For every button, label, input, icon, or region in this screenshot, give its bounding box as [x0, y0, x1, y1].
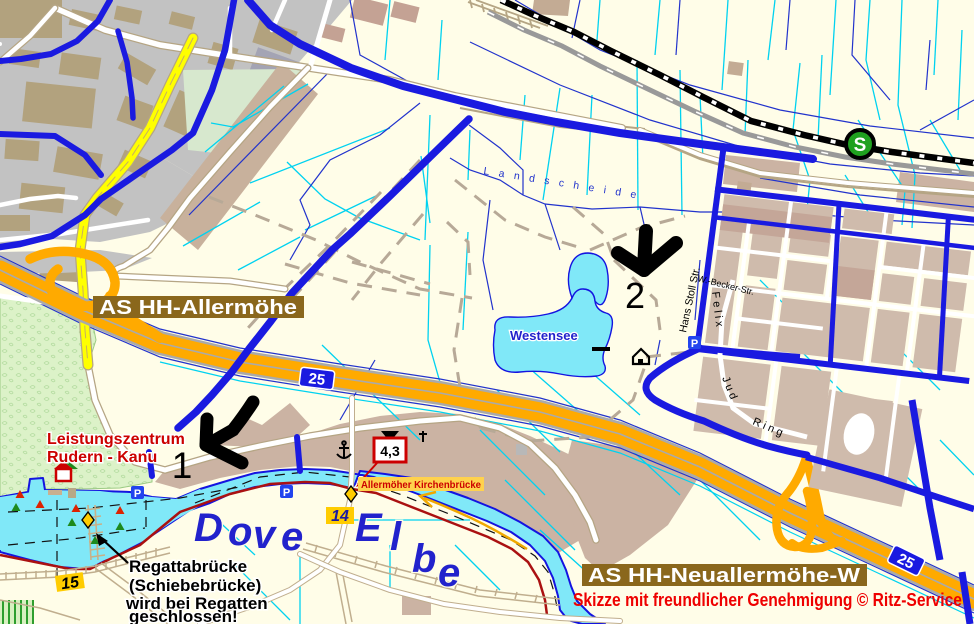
svg-text:b: b: [412, 537, 436, 581]
svg-text:Regattabrücke: Regattabrücke: [129, 557, 247, 576]
svg-text:Allermöher Kirchenbrücke: Allermöher Kirchenbrücke: [361, 480, 481, 491]
svg-text:Skizze mit freundlicher Genehm: Skizze mit freundlicher Genehmigung © Ri…: [573, 590, 962, 610]
svg-text:25: 25: [307, 370, 326, 389]
svg-text:geschlossen!: geschlossen!: [129, 607, 238, 624]
svg-text:S: S: [854, 135, 867, 156]
svg-text:e: e: [438, 551, 460, 595]
svg-text:2: 2: [625, 275, 645, 316]
svg-text:AS HH-Allermöhe: AS HH-Allermöhe: [99, 297, 297, 319]
svg-text:4,3: 4,3: [380, 443, 400, 459]
svg-text:Leistungszentrum: Leistungszentrum: [47, 431, 185, 448]
svg-text:P: P: [691, 338, 698, 350]
svg-text:e: e: [281, 515, 303, 559]
svg-text:o: o: [228, 510, 252, 554]
svg-text:D: D: [194, 506, 223, 550]
svg-text:l: l: [390, 515, 402, 559]
svg-text:Westensee: Westensee: [510, 328, 578, 343]
svg-text:P: P: [283, 487, 290, 499]
svg-text:P: P: [134, 488, 141, 500]
svg-text:15: 15: [60, 574, 81, 593]
svg-text:Rudern - Kanu: Rudern - Kanu: [47, 449, 157, 466]
svg-text:1: 1: [172, 445, 193, 486]
svg-text:(Schiebebrücke): (Schiebebrücke): [129, 576, 261, 595]
svg-text:E: E: [355, 506, 383, 550]
svg-text:AS HH-Neuallermöhe-W: AS HH-Neuallermöhe-W: [588, 565, 860, 587]
svg-text:v: v: [253, 513, 278, 557]
svg-text:14: 14: [331, 508, 349, 525]
